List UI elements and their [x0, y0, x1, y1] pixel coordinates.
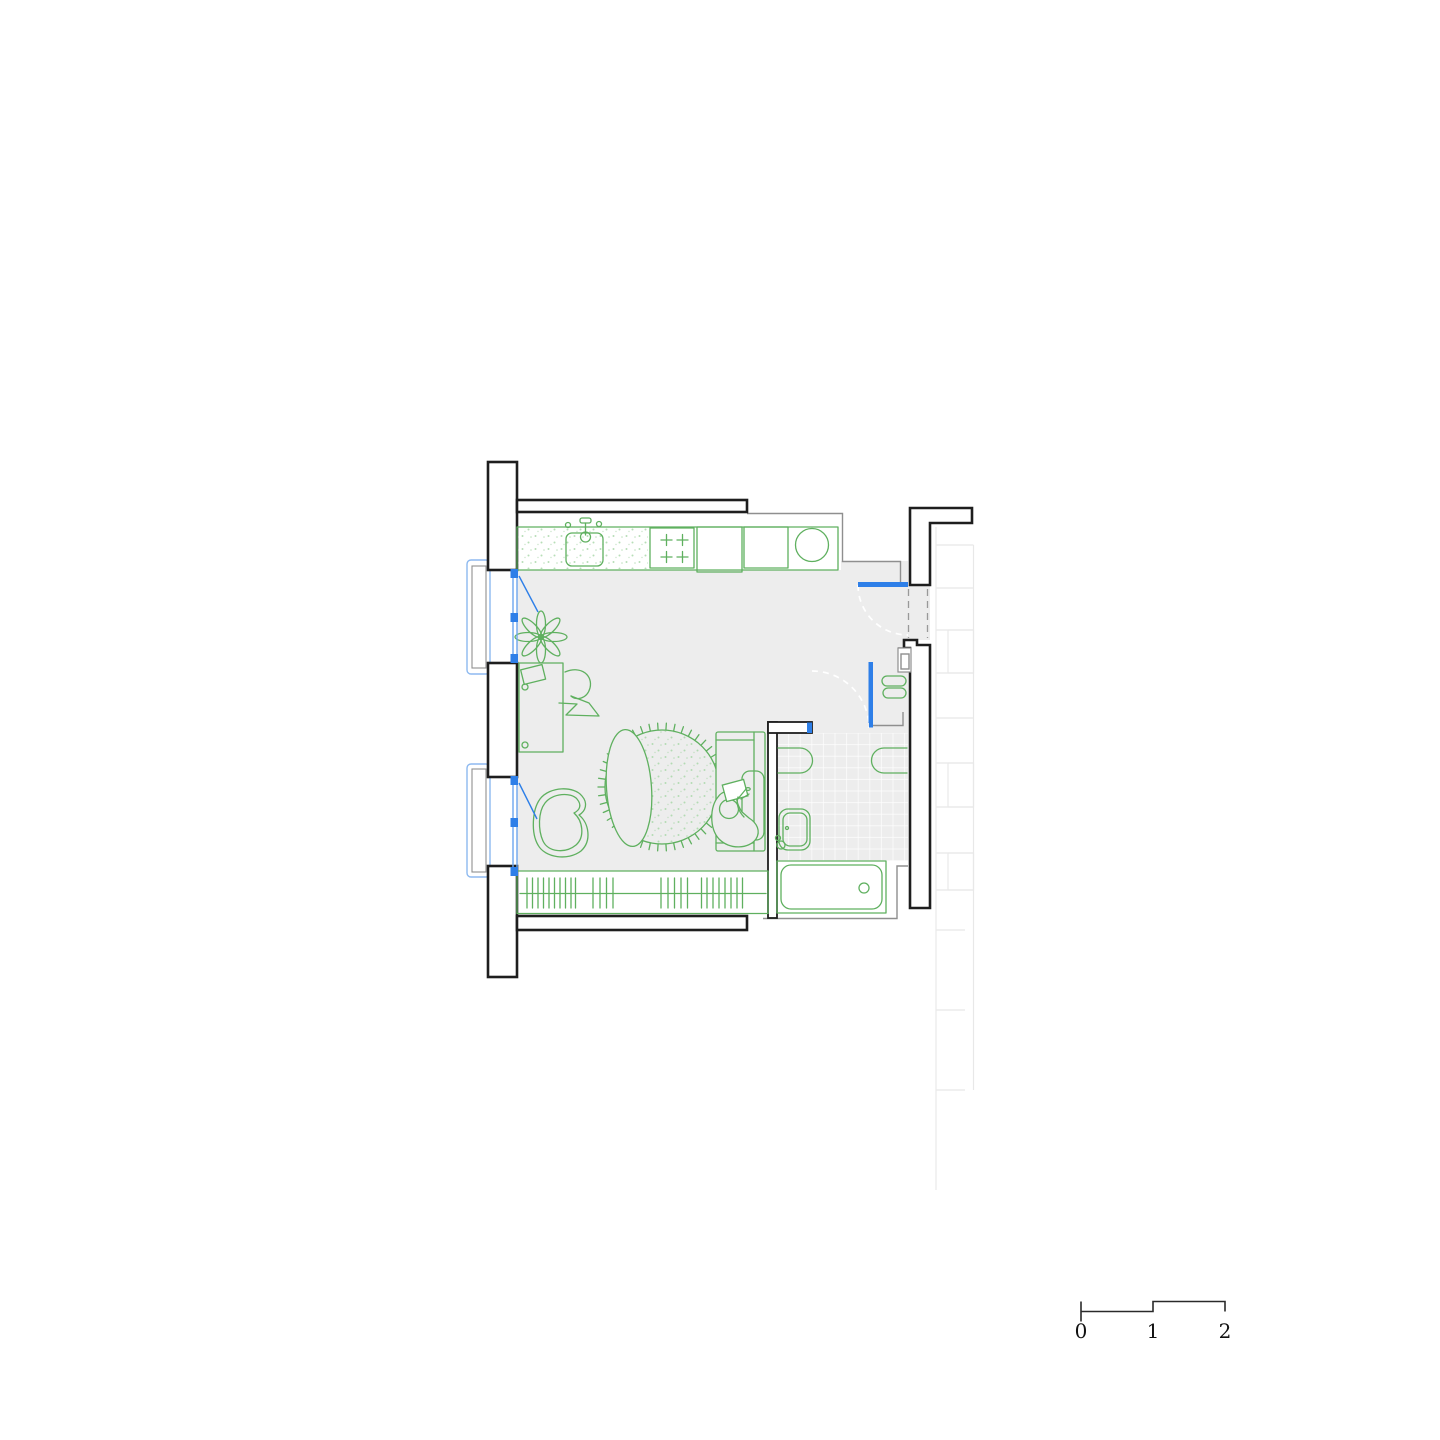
bathtub-icon [777, 861, 886, 913]
scale-label-2: 2 [1219, 1319, 1232, 1343]
round-table [796, 529, 829, 562]
kitchen-cabinet-2 [744, 527, 788, 568]
sofa-with-person-icon [712, 732, 765, 851]
wall-right-top [910, 508, 972, 585]
sliding-door-leaf [869, 662, 874, 723]
door-track-tip [869, 723, 873, 728]
wardrobe-hangers-icon [517, 871, 768, 914]
balcony-top [467, 560, 490, 674]
wall-pier-left-middle [488, 663, 517, 777]
four-burner-stove-icon [650, 528, 694, 568]
bathroom-wall-west [768, 722, 777, 918]
wall-pier-left-bottom [488, 866, 517, 977]
bathroom-wall-north [768, 722, 812, 733]
scale-label-1: 1 [1147, 1319, 1160, 1343]
entry-door-leaf [858, 582, 908, 587]
wall-bottom [517, 916, 747, 930]
adjacent-building-outline [936, 527, 974, 1190]
counter-stipple-texture [518, 528, 648, 569]
door-jamb-tip [807, 723, 812, 734]
floor-plan-canvas: 0 1 2 [0, 0, 1440, 1440]
scale-bar: 0 1 2 [1075, 1302, 1232, 1344]
wall-pier-top-left [488, 462, 517, 570]
balcony-bottom [467, 764, 490, 877]
kitchen [517, 518, 838, 572]
scale-label-0: 0 [1075, 1319, 1088, 1343]
beanbag-chair [533, 789, 588, 857]
wall-top [517, 500, 747, 512]
floor-plan-drawing: 0 1 2 [0, 0, 1440, 1440]
kitchen-cabinet-1 [697, 527, 742, 572]
